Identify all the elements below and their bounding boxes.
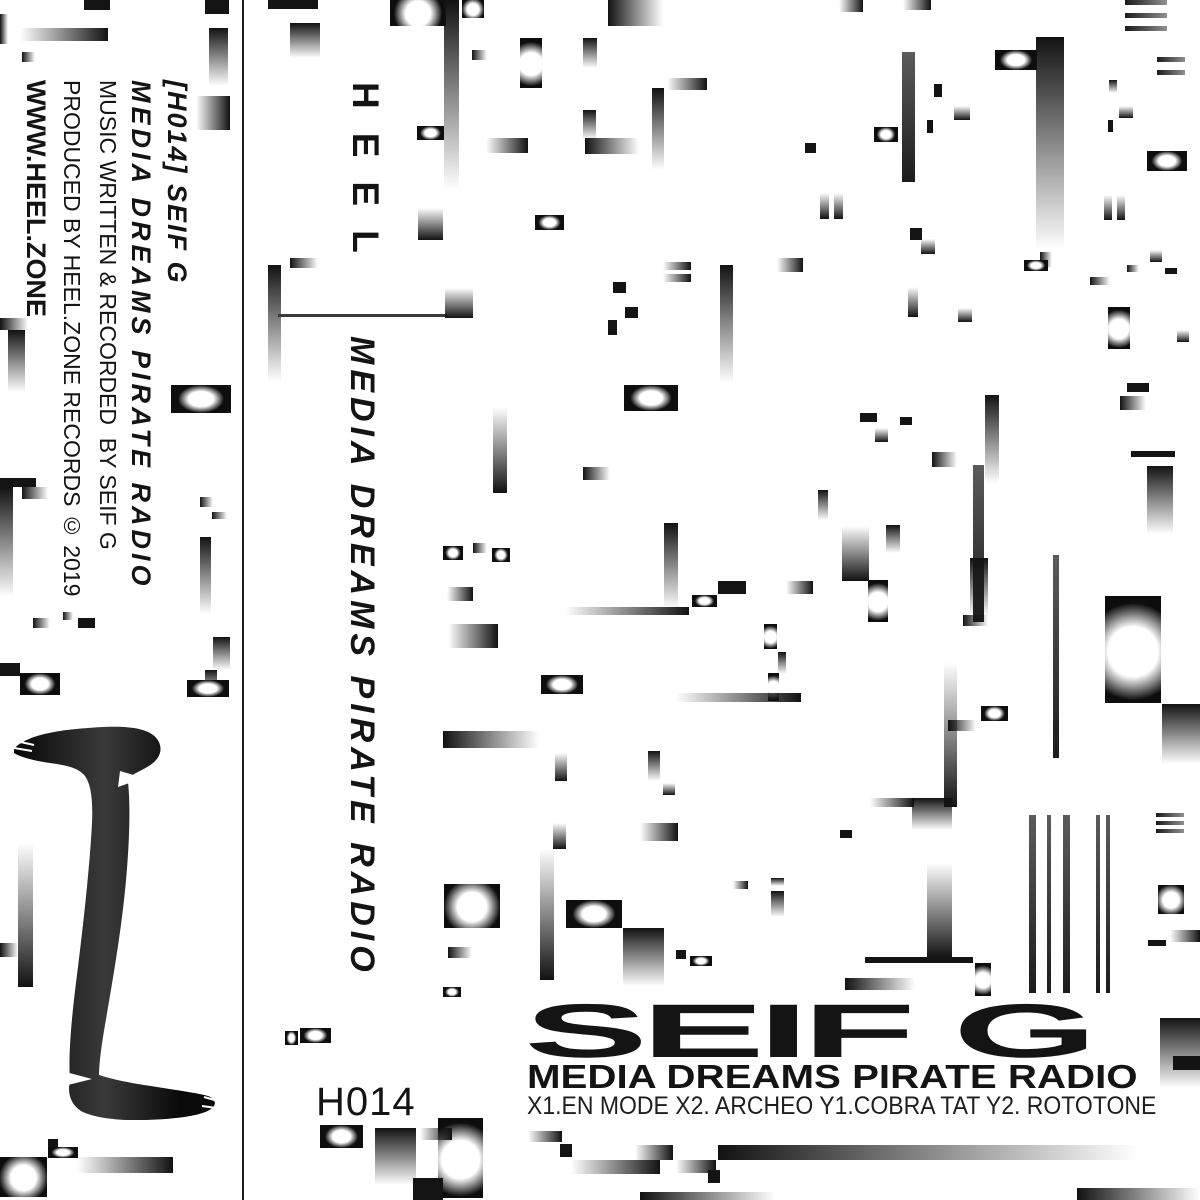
glitch-block (0, 1157, 47, 1197)
glitch-block (187, 680, 229, 697)
glitch-block (443, 546, 463, 560)
glitch-block (486, 138, 528, 153)
glitch-block (22, 487, 48, 499)
glitch-block (1156, 821, 1184, 825)
glitch-block (560, 1144, 572, 1157)
glitch-block (1147, 151, 1187, 171)
glitch-block (196, 96, 230, 130)
glitch-block (886, 525, 900, 553)
glitch-block (473, 543, 487, 553)
glitch-block (840, 830, 852, 838)
glitch-block (48, 1147, 78, 1158)
glitch-block (212, 512, 227, 519)
glitch-block (22, 52, 35, 62)
glitch-block (640, 823, 678, 841)
glitch-block (20, 28, 108, 41)
glitch-block (874, 127, 898, 142)
glitch-block (625, 307, 638, 318)
glitch-block (1160, 1018, 1200, 1088)
glitch-block (648, 751, 660, 781)
glitch-block (934, 84, 942, 97)
glitch-block (771, 878, 784, 886)
glitch-block (540, 848, 554, 980)
glitch-block (418, 208, 443, 240)
glitch-block (209, 28, 228, 86)
glitch-block (921, 239, 935, 254)
glitch-block (8, 330, 25, 392)
glitch-block (200, 537, 211, 614)
glitch-block (0, 318, 28, 330)
glitch-block (1127, 383, 1149, 392)
glitch-block (1047, 815, 1051, 993)
glitch-block (608, 0, 663, 26)
glitch-block (690, 956, 712, 966)
glitch-block (444, 0, 459, 190)
glitch-block (948, 720, 976, 731)
glitch-block (472, 50, 487, 60)
glitch-block (676, 950, 686, 959)
glitch-block (1105, 596, 1161, 703)
glitch-block (764, 624, 777, 649)
glitch-block (963, 615, 988, 626)
glitch-block (320, 1125, 363, 1148)
glitch-block (390, 0, 446, 26)
heel-logo: HEEL (347, 82, 384, 277)
glitch-block (1108, 120, 1113, 132)
glitch-block (875, 428, 888, 442)
glitch-block (1150, 250, 1162, 262)
glitch-block (555, 753, 567, 781)
glitch-block (0, 14, 8, 44)
glitch-block (565, 607, 689, 615)
glitch-block (786, 581, 813, 594)
glitch-block (1170, 930, 1200, 942)
glitch-block (1036, 37, 1064, 250)
glitch-block (805, 143, 816, 153)
glitch-block (583, 467, 610, 480)
glitch-block (448, 947, 472, 958)
glitch-block (268, 0, 318, 9)
glitch-block (1120, 396, 1146, 410)
glitch-block (1077, 1188, 1200, 1200)
glitch-block (1096, 815, 1100, 993)
glitch-block (733, 881, 748, 889)
glitch-block (1063, 815, 1070, 993)
glitch-block (33, 618, 50, 628)
glitch-block (1131, 451, 1175, 457)
glitch-block (462, 0, 484, 18)
glitch-block (1024, 260, 1048, 271)
glitch-block (375, 1128, 416, 1185)
glitch-block (981, 706, 1008, 721)
glitch-block (903, 0, 931, 10)
glitch-block (718, 1145, 1138, 1160)
glitch-block (640, 1192, 775, 1200)
glitch-block (927, 120, 933, 133)
glitch-block (1177, 330, 1189, 342)
glitch-block (63, 612, 73, 620)
glitch-block (1157, 57, 1185, 62)
spine-album-title: MEDIA DREAMS PIRATE RADIO (127, 80, 154, 590)
glitch-block (842, 526, 869, 581)
glitch-block (820, 193, 829, 219)
tracklist: X1.EN MODE X2. ARCHEO Y1.COBRA TAT Y2. R… (527, 1094, 1156, 1119)
glitch-block (927, 863, 952, 958)
glitch-block (444, 884, 500, 928)
glitch-block (608, 320, 617, 335)
glitch-block (420, 1128, 452, 1140)
glitch-block (571, 1160, 660, 1174)
glitch-block (839, 0, 863, 12)
glitch-block (623, 928, 664, 986)
catalog-number: H014 (316, 1080, 416, 1125)
glitch-block (860, 413, 877, 422)
glitch-block (900, 417, 912, 425)
glitch-block (566, 900, 622, 928)
glitch-block (995, 50, 1037, 70)
glitch-block (1125, 13, 1167, 18)
glitch-block (492, 548, 510, 562)
glitch-block (663, 783, 675, 795)
glitch-block (692, 595, 717, 607)
glitch-block (520, 38, 542, 88)
glitch-block (1125, 26, 1167, 31)
glitch-block (652, 88, 664, 170)
glitch-block (777, 258, 803, 272)
glitch-block (664, 523, 678, 609)
glitch-block (1104, 195, 1112, 220)
glitch-block (285, 1031, 298, 1045)
glitch-block (912, 798, 952, 830)
glitch-block (1157, 70, 1185, 75)
glitch-block (535, 215, 564, 230)
glitch-block (171, 385, 231, 413)
glitch-block (676, 693, 801, 702)
glitch-block (954, 106, 970, 120)
glitch-block (1106, 815, 1110, 993)
glitch-block (932, 452, 957, 467)
glitch-block (0, 478, 36, 487)
spine-catalog-artist: [H014] SEIF G (163, 80, 190, 285)
spine-credit-music: MUSIC WRITTEN & RECORDED BY SEIF G (96, 80, 119, 550)
glitch-block (493, 407, 507, 493)
glitch-block (902, 52, 915, 182)
glitch-block (834, 193, 843, 219)
glitch-block (1127, 265, 1139, 272)
glitch-block (958, 308, 972, 322)
glitch-block (720, 265, 733, 383)
glitch-block (0, 663, 20, 676)
glitch-block (1109, 80, 1117, 93)
glitch-block (77, 1157, 173, 1173)
spine-credit-produced: PRODUCED BY HEEL.ZONE RECORDS © 2019 (60, 80, 83, 596)
glitch-block (1117, 195, 1125, 220)
glitch-block (205, 0, 229, 14)
glitch-block (1148, 940, 1166, 946)
glitch-block (583, 38, 597, 68)
glitch-block (300, 1028, 331, 1043)
glitch-block (1108, 307, 1130, 349)
glitch-block (48, 1139, 58, 1147)
glitch-block (1090, 277, 1110, 285)
glitch-block (1156, 829, 1184, 833)
glitch-block (667, 78, 707, 90)
spine-fold-line (242, 0, 244, 1200)
glitch-block (818, 490, 828, 520)
glitch-block (970, 558, 988, 616)
leg-illustration (8, 715, 220, 1120)
glitch-block (20, 673, 60, 695)
front-album-vertical: MEDIA DREAMS PIRATE RADIO (345, 336, 379, 977)
jcard-artwork: WWW.HEEL.ZONE PRODUCED BY HEEL.ZONE RECO… (0, 0, 1200, 1200)
glitch-block (868, 580, 888, 622)
glitch-block (1158, 885, 1184, 914)
glitch-block (635, 1145, 673, 1160)
glitch-block (443, 987, 461, 997)
glitch-block (908, 287, 918, 317)
glitch-block (1029, 815, 1036, 993)
glitch-block (624, 385, 678, 411)
glitch-block (663, 274, 691, 282)
glitch-block (200, 497, 213, 507)
glitch-block (985, 395, 999, 484)
glitch-block (447, 587, 473, 601)
glitch-block (1147, 466, 1173, 534)
spine-website: WWW.HEEL.ZONE (22, 80, 49, 317)
glitch-block (1119, 106, 1133, 118)
glitch-block (1165, 268, 1177, 274)
glitch-block (944, 662, 957, 807)
glitch-block (448, 624, 498, 648)
glitch-block (1053, 555, 1059, 758)
glitch-block (413, 1178, 443, 1200)
glitch-block (613, 282, 626, 293)
album-title: MEDIA DREAMS PIRATE RADIO (527, 1060, 1138, 1093)
glitch-block (583, 110, 596, 140)
glitch-block (443, 731, 539, 748)
glitch-block (268, 265, 281, 382)
glitch-block (290, 258, 318, 268)
glitch-block (417, 126, 444, 140)
glitch-block (1125, 0, 1167, 5)
glitch-block (84, 0, 110, 10)
glitch-block (663, 262, 691, 270)
glitch-block (541, 675, 583, 694)
glitch-block (78, 618, 95, 628)
glitch-block (870, 798, 914, 807)
glitch-block (278, 314, 447, 317)
glitch-block (778, 652, 786, 674)
glitch-block (708, 1170, 720, 1183)
glitch-block (585, 138, 639, 154)
glitch-block (528, 1131, 562, 1142)
glitch-block (0, 487, 13, 597)
glitch-block (865, 957, 973, 963)
glitch-block (553, 823, 566, 849)
glitch-block (718, 581, 746, 594)
glitch-block (445, 288, 473, 318)
glitch-block (771, 891, 784, 917)
glitch-block (1156, 813, 1184, 817)
glitch-block (213, 637, 230, 670)
glitch-block (290, 23, 320, 58)
glitch-block (1162, 704, 1200, 764)
